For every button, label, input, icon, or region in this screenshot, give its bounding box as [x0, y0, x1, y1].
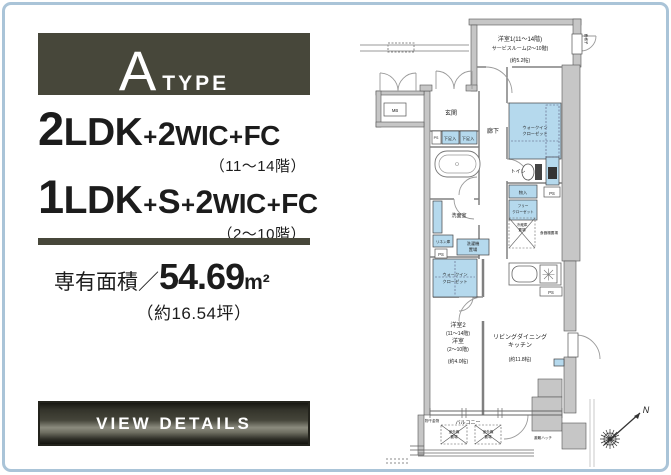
outdoor-unit-label-1a: 室外機 — [449, 429, 460, 434]
stove-icon — [543, 269, 555, 281]
wic1-label-1: ウォークイン — [522, 124, 547, 131]
room2-size: (約4.0帖) — [448, 358, 469, 365]
hatch-label: 避難ハッチ — [534, 435, 552, 440]
outdoor-unit-label-2a: 室外機 — [483, 429, 494, 434]
fridge-label-2: 置場 — [518, 227, 526, 232]
plan-type-line-2: 1LDK+S+2WIC+FC — [38, 173, 318, 220]
entrance-label: 玄関 — [445, 109, 457, 117]
ps-label-entrance: PS — [434, 136, 439, 140]
type-suffix: TYPE — [162, 72, 229, 96]
outdoor-unit-label-2b: 置場 — [484, 434, 492, 439]
bathtub-icon — [435, 151, 480, 177]
free-closet-label-2: クローゼット — [512, 209, 534, 214]
room1-sublabel: サービスルーム(2〜10階) — [492, 45, 549, 52]
ldk-label-1: リビングダイニング — [493, 333, 547, 341]
room1-window — [572, 34, 582, 54]
card-frame: A TYPE 2LDK+2WIC+FC （11〜14階） 1LDK+S+2WIC… — [2, 2, 669, 472]
hallway-label: 廊下 — [487, 127, 499, 135]
fridge-label-1: 冷蔵庫 — [517, 222, 528, 227]
view-details-button[interactable]: VIEW DETAILS — [38, 401, 310, 446]
area-label: 専有面積 — [54, 271, 138, 294]
washroom-label: 洗面室 — [451, 212, 466, 219]
cupboard-label: 食器棚置場 — [540, 230, 558, 235]
wic2-label-2: クローゼット — [442, 278, 467, 285]
plan-type-line-1: 2LDK+2WIC+FC — [38, 105, 280, 152]
area-line: 専有面積／54.69m² — [54, 259, 270, 295]
ps-label-washroom: PS — [438, 252, 444, 257]
area-unit: m² — [244, 271, 270, 294]
ldk-label-2: キッチン — [508, 342, 532, 349]
room1-size: (約5.2帖) — [510, 57, 531, 64]
compass-icon — [600, 413, 640, 449]
wic1-label-2: クローゼット — [522, 130, 547, 137]
kitchen-counter — [509, 263, 561, 285]
linen-label: リネン庫 — [436, 239, 451, 244]
area-slash: ／ — [138, 271, 159, 294]
room2-floors-1: (11〜14階) — [446, 330, 470, 337]
room1-label: 洋室1(11〜14階) — [498, 35, 542, 43]
view-details-label: VIEW DETAILS — [96, 414, 252, 434]
room2-label: 洋室2 — [450, 321, 466, 329]
area-value: 54.69 — [159, 256, 244, 297]
mb-label: MB — [392, 108, 398, 113]
laundry-label-2: 置場 — [469, 246, 478, 253]
plan-labels: 洋室1(11〜14階) サービスルーム(2〜10階) (約5.2帖) 面格子 玄… — [392, 34, 650, 440]
hook-label: 物干金物 — [425, 418, 440, 423]
corridor-lines — [360, 43, 469, 52]
room2-floors-2: (2〜10階) — [447, 346, 469, 353]
info-panel: A TYPE 2LDK+2WIC+FC （11〜14階） 1LDK+S+2WIC… — [38, 33, 310, 453]
room2-alt-label: 洋室 — [452, 337, 464, 345]
walls — [376, 19, 586, 455]
ps-label-kitchen: PS — [548, 290, 554, 295]
compass-n-label: N — [643, 405, 650, 415]
type-letter: A — [119, 43, 157, 99]
toilet-label: トイレ — [510, 169, 525, 175]
grille-label: 面格子 — [584, 34, 589, 45]
divider-bar — [38, 238, 310, 245]
wic2-label-1: ウォークイン — [442, 271, 467, 278]
balcony-label: バルコニー — [456, 420, 481, 426]
free-closet-label-1: フリー — [518, 203, 529, 208]
floor-plan: 洋室1(11〜14階) サービスルーム(2〜10階) (約5.2帖) 面格子 玄… — [358, 9, 670, 475]
area-tsubo: （約16.54坪） — [38, 299, 310, 324]
ldk-side-door — [568, 333, 578, 357]
laundry-label-1: 洗濯機 — [467, 240, 480, 247]
ldk-size: (約11.8帖) — [509, 356, 532, 363]
outdoor-unit-label-1b: 置場 — [450, 434, 458, 439]
type-header: A TYPE — [38, 33, 310, 95]
ps-label-toilet: PS — [549, 191, 555, 196]
storage-label: 物入 — [519, 189, 528, 196]
